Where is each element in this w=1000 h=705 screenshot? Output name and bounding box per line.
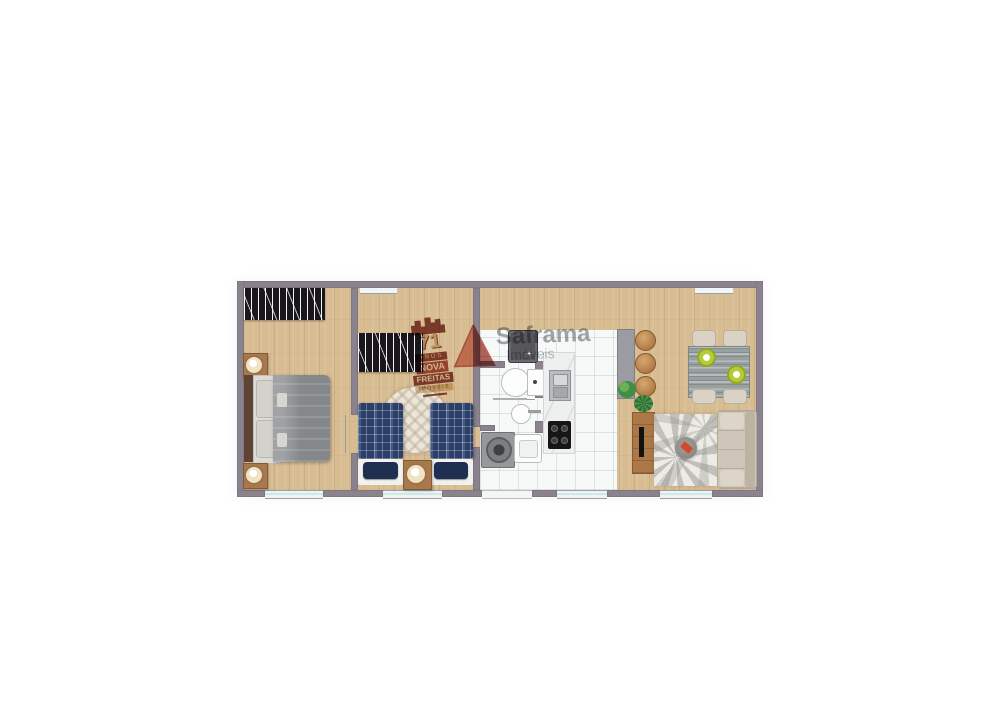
decor-bowl	[727, 365, 746, 384]
wall-top	[237, 281, 763, 288]
high-window-top-right	[695, 288, 733, 294]
washbasin	[511, 404, 531, 424]
lamp-between-beds	[407, 465, 425, 483]
cooktop	[548, 421, 571, 449]
dining-chair	[723, 330, 747, 347]
dining-chair	[692, 389, 716, 404]
basin-faucet	[528, 410, 541, 413]
wall-bottom-segment	[712, 490, 763, 497]
wall-bedroom1-bedroom2-lower	[351, 453, 358, 490]
service-door-opening	[482, 490, 532, 499]
laundry-tank	[514, 434, 542, 463]
toilet-flush-button	[533, 380, 537, 384]
wall-right	[756, 281, 763, 497]
dining-chair	[723, 389, 747, 404]
lamp-bottom	[246, 467, 262, 483]
wall-bottom-segment	[607, 490, 660, 497]
stool	[635, 353, 656, 374]
single-bed-right-pillow	[434, 462, 468, 479]
pyramid-icon	[449, 321, 499, 371]
stool	[635, 330, 656, 351]
wall-bottom-segment	[532, 490, 557, 497]
tv	[639, 427, 644, 457]
wall-bedroom2-service	[473, 447, 480, 490]
skyline-icon	[410, 314, 446, 335]
floor-plan-image: +	[0, 0, 1000, 705]
single-bed-left-duvet	[358, 403, 403, 459]
toilet-bowl	[501, 368, 530, 397]
dining-chair	[692, 330, 716, 347]
wall-bottom-segment	[237, 490, 265, 497]
decor-bowl	[697, 348, 716, 367]
apartment-floor-plan: +	[237, 281, 763, 497]
wall-bedroom1-bedroom2	[351, 288, 358, 415]
window-kitchen	[557, 490, 607, 499]
window-bedroom-1	[265, 490, 323, 499]
saframa-subtitle: Imóveis	[506, 345, 555, 363]
single-bed-left-pillow	[363, 462, 398, 479]
duvet-fold	[277, 393, 287, 407]
double-bed-duvet	[273, 375, 330, 462]
door-leaf-bedroom2	[345, 415, 346, 453]
nova-freitas-logo: 71 ANOS NOVA FREITAS IMÓVEIS	[407, 314, 455, 398]
washing-machine	[481, 432, 515, 468]
plant-bush	[618, 381, 636, 398]
plant-fern	[634, 395, 653, 412]
saframa-logo: Saframa Imóveis	[449, 317, 611, 373]
stool	[635, 376, 656, 397]
towel-rail	[493, 398, 527, 400]
wall-bottom-segment	[323, 490, 383, 497]
sofa	[717, 410, 757, 489]
lamp-top	[246, 357, 262, 373]
sliding-door-living	[660, 490, 712, 499]
wardrobe-bedroom1	[244, 288, 325, 320]
bed-headboard	[244, 375, 253, 462]
duvet-fold	[277, 433, 287, 447]
wall-bath-service-stub	[480, 425, 495, 431]
single-bed-right-duvet	[430, 403, 473, 459]
high-window-top-left	[360, 288, 397, 294]
wall-bottom-segment	[442, 490, 482, 497]
kitchen-sink	[549, 370, 571, 401]
window-bedroom-2	[383, 490, 442, 499]
